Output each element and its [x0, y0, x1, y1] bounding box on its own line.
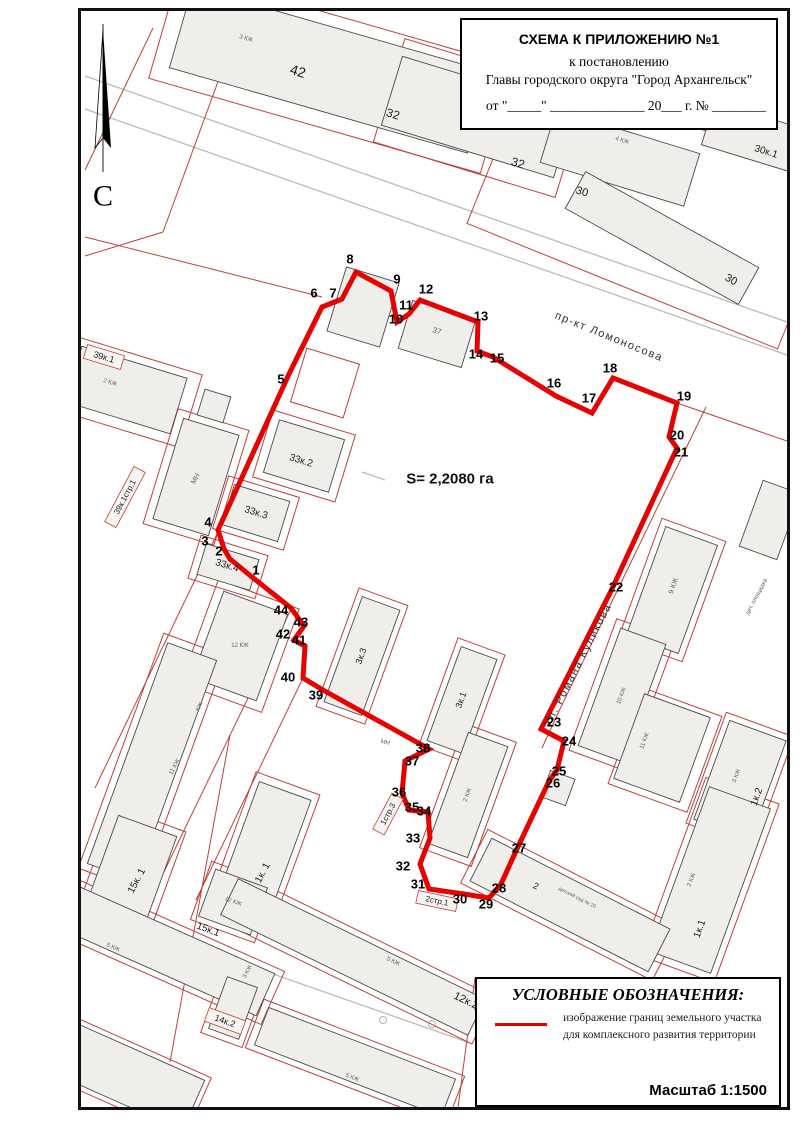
title-block: СХЕМА К ПРИЛОЖЕНИЮ №1 к постановлению Гл… — [460, 18, 778, 130]
vertex-number: 14 — [469, 347, 484, 362]
title-line2: к постановлению — [462, 53, 776, 71]
legend-description-line2: для комплексного развития территории — [563, 1027, 761, 1044]
legend-boundary-sample — [495, 1023, 547, 1026]
vertex-number: 42 — [276, 627, 290, 642]
vertex-number: 32 — [396, 859, 410, 874]
vertex-number: 2 — [215, 544, 222, 559]
vertex-number: 41 — [292, 633, 306, 648]
parcel-line — [85, 237, 322, 297]
north-label: С — [93, 180, 113, 213]
vertex-number: 38 — [416, 741, 430, 756]
vertex-number: 35 — [405, 800, 419, 815]
vertex-number: 12 — [419, 282, 433, 297]
street-edge-line — [362, 472, 385, 480]
vertex-number: 33 — [406, 831, 420, 846]
vertex-number: 10 — [389, 312, 403, 327]
vertex-number: 18 — [603, 361, 617, 376]
vertex-number: 26 — [546, 776, 560, 791]
city-map-canvas: 423232303030к.14 КЖ3 КЖ2 КЖ39к.139к.1стр… — [81, 11, 787, 1107]
vertex-number: 39 — [309, 688, 323, 703]
scale-label: Масштаб 1:1500 — [649, 1082, 767, 1099]
vertex-number: 6 — [310, 286, 317, 301]
building — [650, 787, 771, 974]
vertex-number: 24 — [562, 734, 577, 749]
legend-heading: УСЛОВНЫЕ ОБОЗНАЧЕНИЯ: — [477, 985, 779, 1005]
vertex-number: 36 — [392, 785, 406, 800]
vertex-number: 30 — [453, 892, 467, 907]
building-label: 12 КЖ — [231, 643, 249, 649]
building — [739, 480, 787, 559]
building — [470, 838, 670, 972]
vertex-number: 11 — [399, 298, 413, 313]
vertex-number: 15 — [490, 351, 504, 366]
vertex-number: 5 — [277, 372, 284, 387]
vertex-number: 21 — [674, 445, 688, 460]
building — [327, 267, 399, 347]
map-mark — [380, 1017, 387, 1024]
parcel-line — [85, 232, 163, 256]
vertex-number: 7 — [329, 286, 336, 301]
vertex-number: 37 — [405, 754, 419, 769]
vertex-number: 44 — [274, 603, 289, 618]
vertex-number: 3 — [201, 534, 208, 549]
vertex-number: 13 — [474, 309, 488, 324]
vertex-number: 1 — [252, 563, 259, 578]
parcel-line — [677, 403, 787, 441]
north-arrow-blade — [103, 30, 111, 148]
legend-description-line1: изображение границ земельного участка — [563, 1010, 761, 1027]
vertex-number: 22 — [609, 580, 623, 595]
legend-description: изображение границ земельного участка дл… — [563, 1010, 761, 1043]
area-label: S= 2,2080 га — [406, 471, 494, 488]
vertex-number: 16 — [547, 376, 561, 391]
vertex-number: 8 — [346, 252, 353, 267]
vertex-number: 43 — [294, 615, 308, 630]
vertex-number: 4 — [204, 515, 212, 530]
title-line3: Главы городского округа "Город Архангель… — [462, 71, 776, 89]
vertex-number: 40 — [281, 670, 295, 685]
vertex-number: 31 — [411, 877, 425, 892]
vertex-number: 19 — [677, 389, 691, 404]
building-label: 15к.1 — [195, 921, 222, 940]
building-label: МН — [380, 739, 391, 747]
title-line1: СХЕМА К ПРИЛОЖЕНИЮ №1 — [462, 31, 776, 47]
north-arrow-blade-outline — [95, 30, 103, 148]
vertex-number: 20 — [670, 428, 684, 443]
vertex-number: 9 — [393, 272, 400, 287]
vertex-number: 27 — [512, 841, 526, 856]
map-frame: 423232303030к.14 КЖ3 КЖ2 КЖ39к.139к.1стр… — [78, 8, 790, 1110]
vertex-number: 23 — [547, 715, 561, 730]
building-label: дет. площадка — [745, 577, 769, 616]
legend: УСЛОВНЫЕ ОБОЗНАЧЕНИЯ: изображение границ… — [475, 977, 781, 1107]
vertex-number: 17 — [582, 391, 596, 406]
parcel-outline — [291, 348, 360, 418]
building — [81, 1019, 205, 1107]
vertex-number: 29 — [479, 897, 493, 912]
building — [254, 1007, 455, 1107]
building — [197, 389, 231, 423]
building-label: н.с. — [430, 886, 438, 892]
title-date-line: от "_____" ______________ 20___ г. № ___… — [462, 98, 776, 114]
street-label: пр-кт Ломоносова — [553, 310, 665, 364]
vertex-number: 28 — [492, 881, 506, 896]
parcel-line — [85, 28, 153, 170]
